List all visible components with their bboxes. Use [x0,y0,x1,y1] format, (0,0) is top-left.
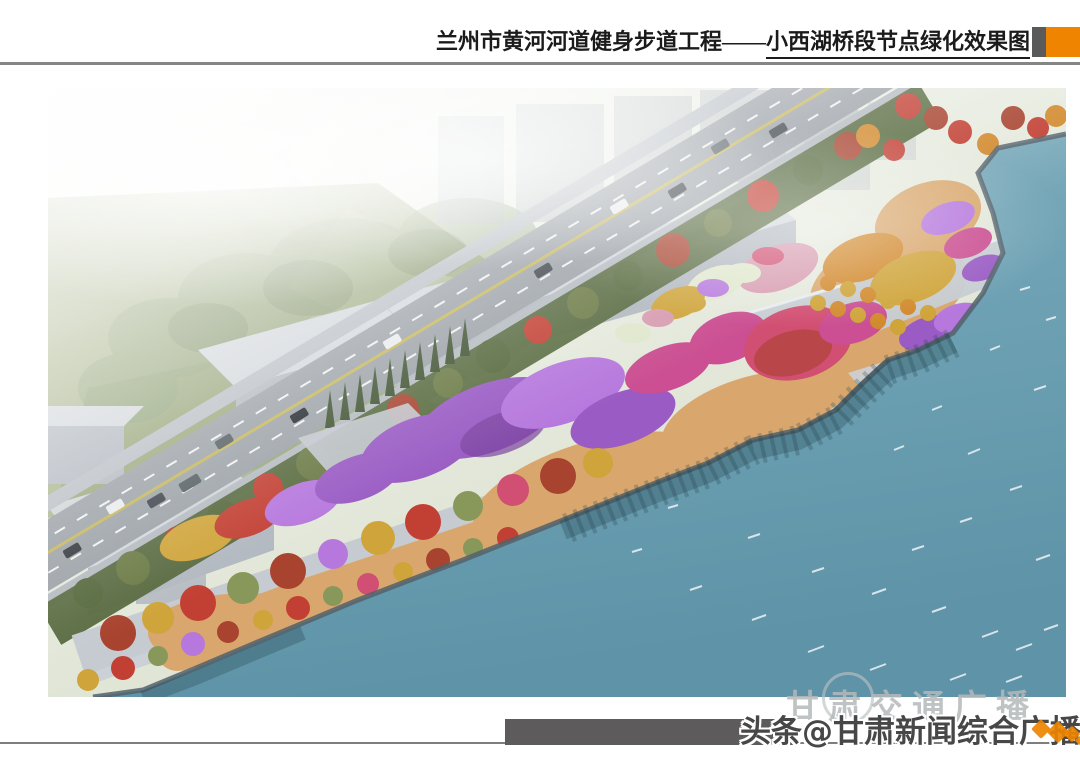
title-gray-block [1032,27,1046,57]
page-title: 兰州市黄河河道健身步道工程——小西湖桥段节点绿化效果图 [436,24,1030,58]
rendering-image [48,88,1066,697]
title-accent-block [1046,27,1080,57]
header-divider [0,62,1080,65]
fog-haze [48,88,1066,697]
aerial-rendering [48,88,1066,697]
title-project: 兰州市黄河河道健身步道工程 [436,29,722,54]
toutiao-watermark-text: 头条@甘肃新闻综合广播 [740,706,1080,751]
title-section: 小西湖桥段节点绿化效果图 [766,29,1030,59]
title-dash: —— [722,29,766,54]
